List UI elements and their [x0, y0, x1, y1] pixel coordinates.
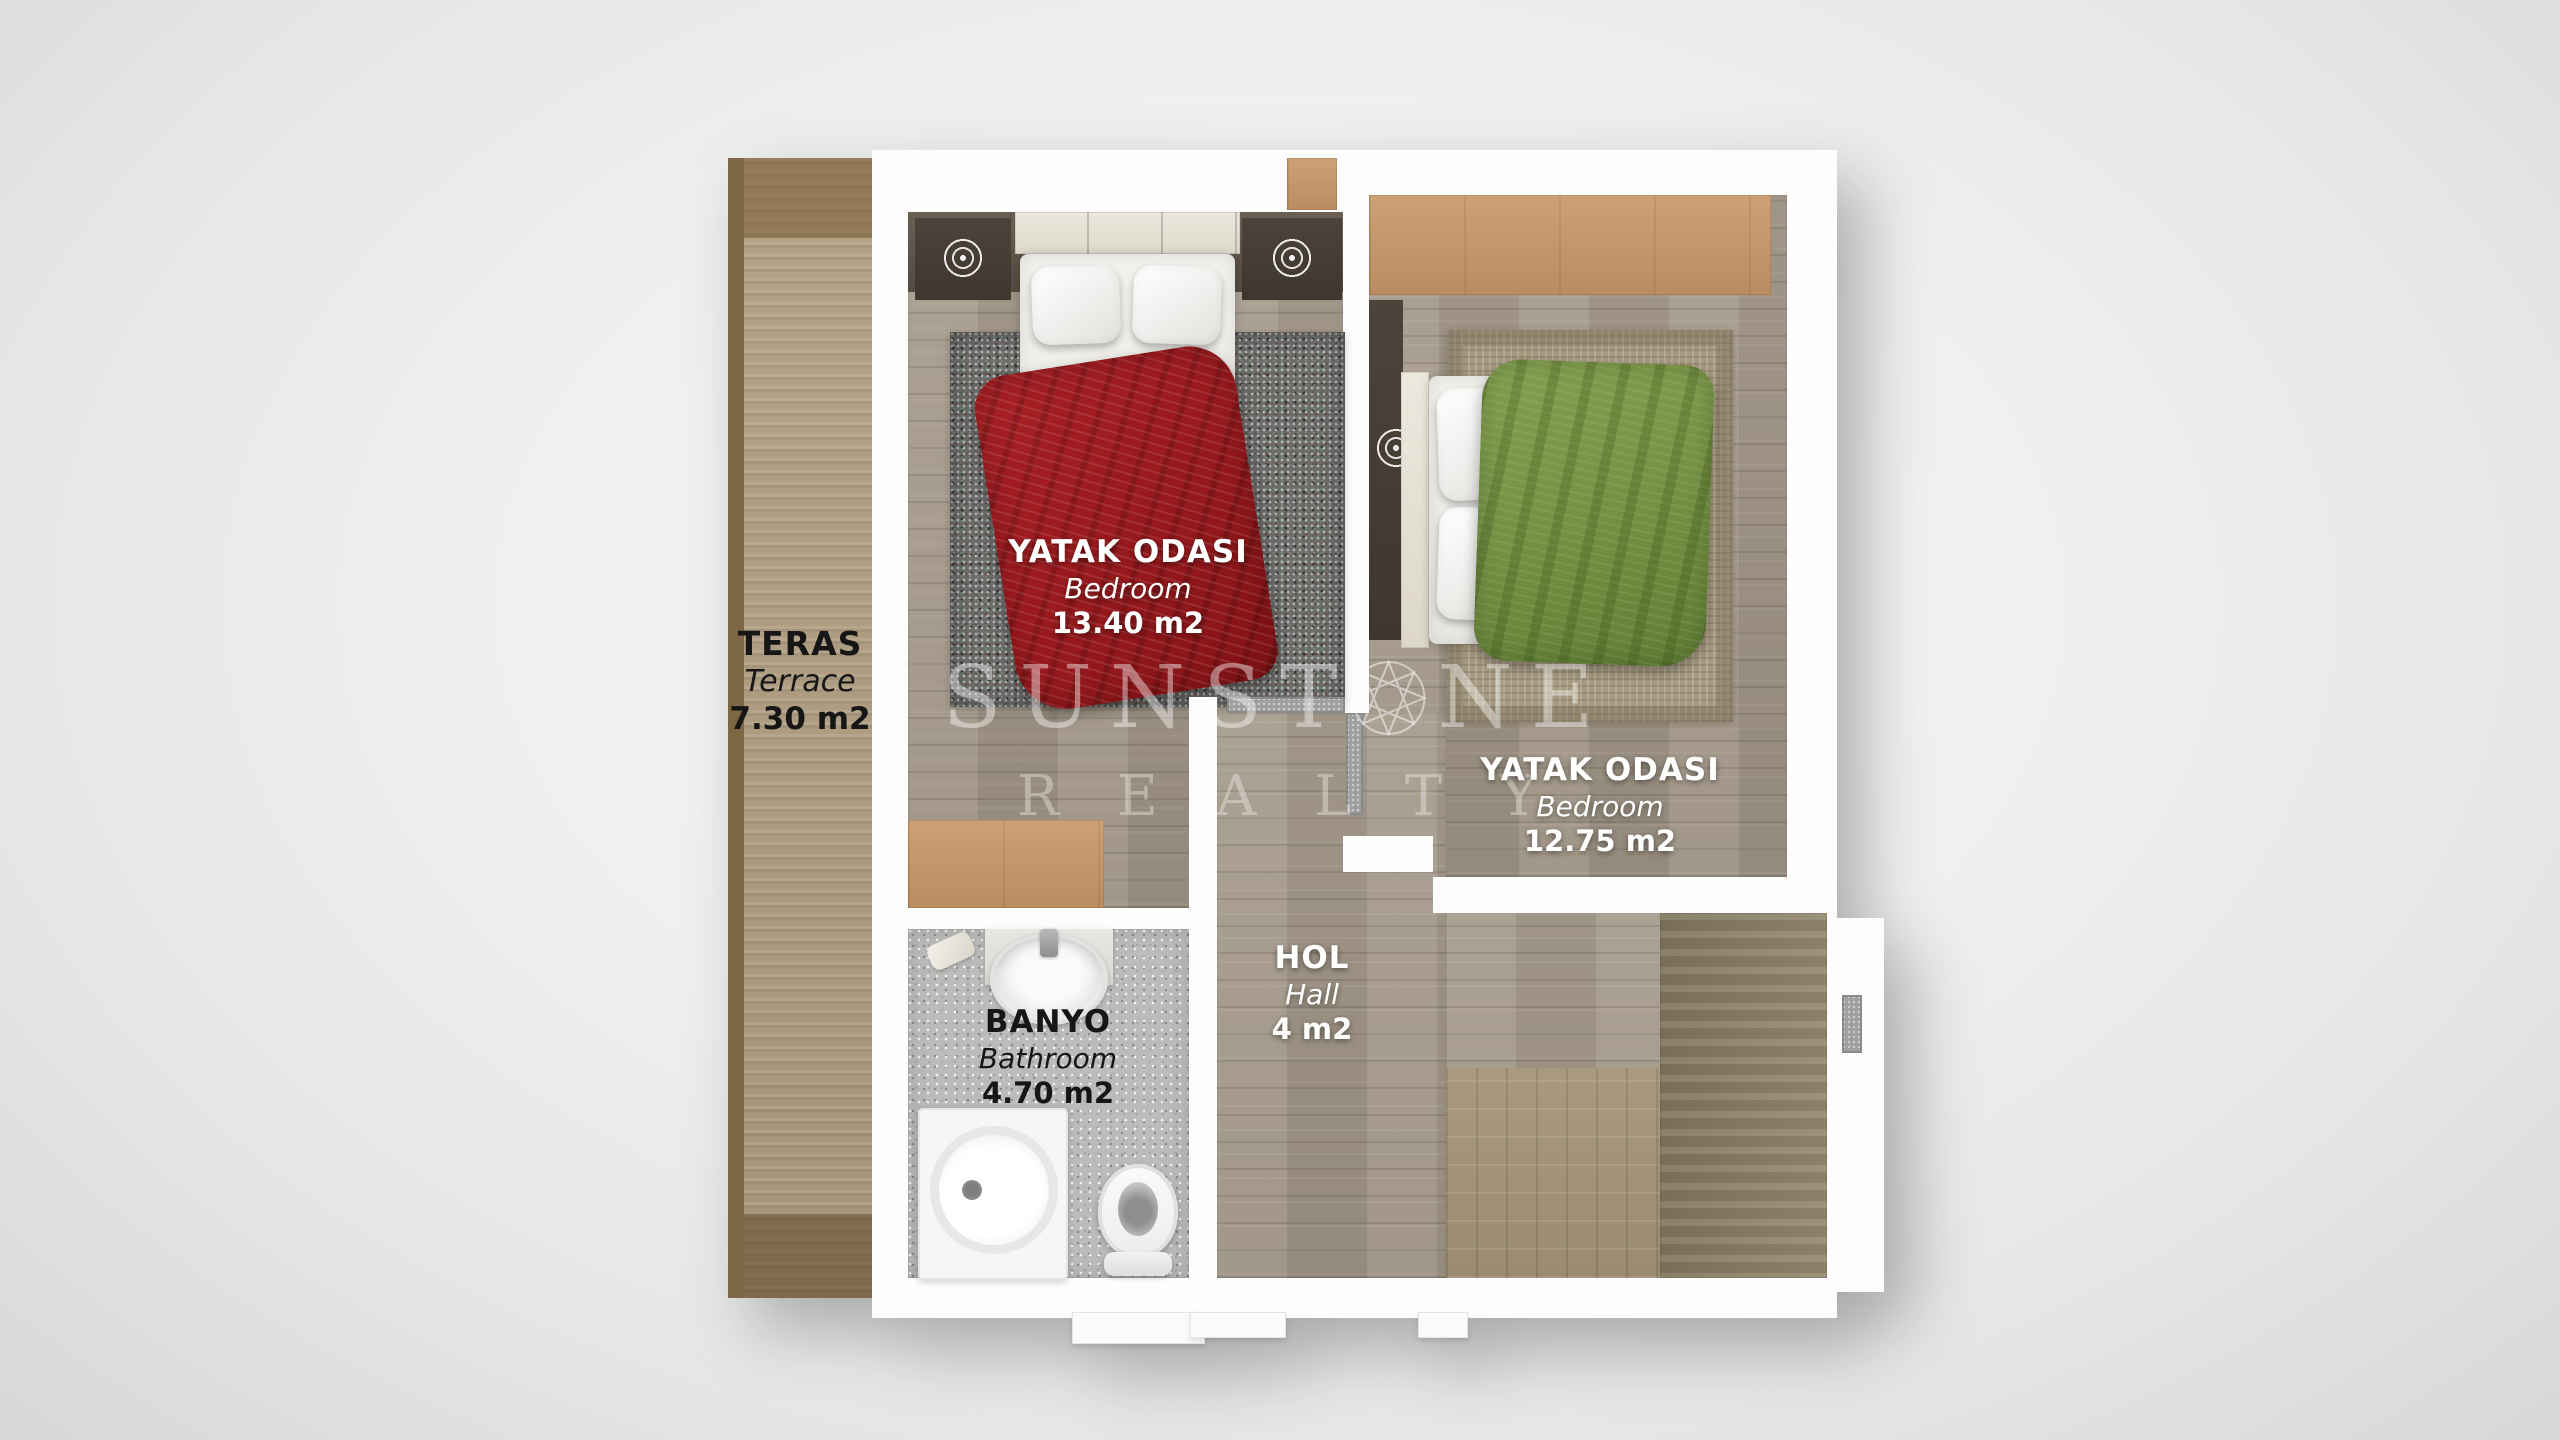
- toilet-bowl: [1118, 1182, 1158, 1236]
- room-name-en: Bedroom: [948, 572, 1308, 606]
- staircase: [1446, 1068, 1670, 1278]
- glass-door: [1346, 713, 1363, 815]
- room-name: YATAK ODASI: [948, 534, 1308, 572]
- floorplan-canvas: TERAS Terrace 7.30 m2 YATAK ODASI Bedroo…: [0, 0, 2560, 1440]
- interior-wall: [1433, 877, 1787, 913]
- interior-wall: [1189, 697, 1217, 929]
- window: [1842, 995, 1862, 1053]
- bed-headboard-bench: [1015, 212, 1240, 254]
- room-name: BANYO: [900, 1004, 1196, 1042]
- glass-door: [1227, 697, 1345, 713]
- hall-label: HOL Hall 4 m2: [1212, 940, 1412, 1047]
- toilet-seat: [1104, 1252, 1172, 1276]
- terrace-label: TERAS Terrace 7.30 m2: [694, 624, 906, 739]
- shower-drain-icon: [962, 1180, 982, 1200]
- room-name: YATAK ODASI: [1415, 752, 1785, 790]
- ceiling-lamp-icon: [1268, 234, 1316, 282]
- ceiling-lamp-icon: [939, 234, 987, 282]
- room-name: TERAS: [694, 624, 906, 664]
- red-blanket: [970, 340, 1282, 717]
- room-area: 12.75 m2: [1415, 824, 1785, 859]
- window: [1072, 1312, 1205, 1344]
- floorplan: TERAS Terrace 7.30 m2 YATAK ODASI Bedroo…: [0, 0, 2560, 1440]
- room-name-en: Bathroom: [900, 1042, 1196, 1076]
- window: [1190, 1312, 1286, 1338]
- stair-landing-panel: [1660, 913, 1827, 1278]
- room-area: 4.70 m2: [900, 1076, 1196, 1111]
- window: [1418, 1312, 1468, 1338]
- bedroom1-label: YATAK ODASI Bedroom 13.40 m2: [948, 534, 1308, 641]
- room-area: 4 m2: [1212, 1012, 1412, 1047]
- bed-headboard-bench: [1401, 372, 1429, 648]
- pillow: [1031, 264, 1122, 345]
- bedroom1-wardrobe: [908, 820, 1104, 908]
- window-lintel: [1287, 158, 1337, 210]
- room-name-en: Terrace: [694, 664, 906, 701]
- pillow: [1132, 264, 1223, 345]
- bedroom2-label: YATAK ODASI Bedroom 12.75 m2: [1415, 752, 1785, 859]
- shower-basin: [930, 1126, 1058, 1254]
- bathroom-label: BANYO Bathroom 4.70 m2: [900, 1004, 1196, 1111]
- room-area: 13.40 m2: [948, 606, 1308, 641]
- room-area: 7.30 m2: [694, 701, 906, 739]
- faucet: [1040, 929, 1058, 957]
- green-blanket: [1473, 358, 1715, 668]
- room-name-en: Hall: [1212, 978, 1412, 1012]
- bedroom2-wardrobe: [1369, 195, 1771, 295]
- room-name-en: Bedroom: [1415, 790, 1785, 824]
- room-name: HOL: [1212, 940, 1412, 978]
